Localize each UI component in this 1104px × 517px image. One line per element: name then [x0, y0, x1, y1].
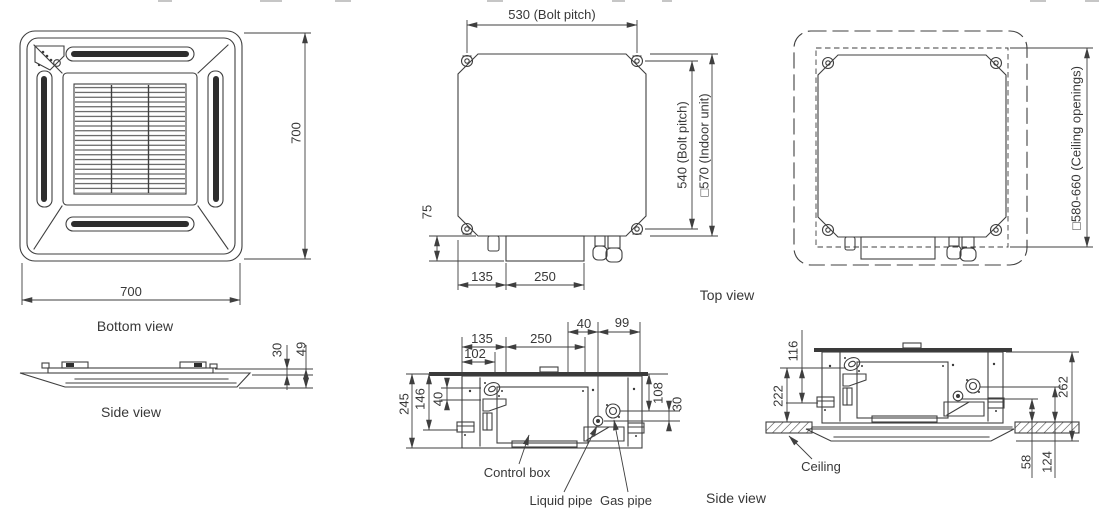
dim-540-bolt-pitch: 540 (Bolt pitch) [675, 101, 690, 188]
bottom-view-caption: Bottom view [97, 318, 174, 334]
panel-side-view: 30 49 Side view [20, 342, 313, 420]
panel-side-view-caption: Side view [101, 404, 162, 420]
dim-222: 222 [771, 385, 786, 407]
unit-side-dimensions: 135 250 40 99 102 245 146 40 108 [397, 315, 685, 448]
hanger-brackets [462, 56, 643, 235]
dim-30: 30 [670, 397, 685, 411]
refrigerant-pipes [593, 236, 622, 262]
drain-pump [482, 380, 506, 430]
ceiling-opening-outline [816, 48, 1008, 247]
dim-102: 102 [464, 346, 486, 361]
gas-pipe-joint [606, 404, 620, 418]
unit-side-view: 135 250 40 99 102 245 146 40 108 [397, 315, 767, 508]
decoration-panel [806, 427, 1014, 441]
cassette-unit-dimension-drawing: 700 700 Bottom view 30 49 [0, 0, 1104, 517]
unit-body-outline [458, 54, 646, 236]
bottom-view: 700 700 Bottom view [20, 31, 311, 334]
ceiling-label-group: Ceiling [789, 436, 841, 474]
dim-135: 135 [471, 331, 493, 346]
dim-250: 250 [534, 269, 556, 284]
dim-580-660-ceiling-openings: □580-660 (Ceiling openings) [1069, 66, 1084, 230]
top-view: 530 (Bolt pitch) 540 (Bolt pitch) □570 (… [420, 7, 756, 303]
dim-width-700: 700 [120, 284, 142, 299]
bottom-slot [512, 441, 577, 447]
dim-250: 250 [530, 331, 552, 346]
control-box-label: Control box [484, 465, 551, 480]
dim-124: 124 [1040, 451, 1055, 473]
hanger-brackets [823, 58, 1002, 236]
ceiling-opening-view: □580-660 (Ceiling openings) [794, 31, 1093, 265]
decoration-panel-profile [20, 373, 250, 387]
gas-pipe-label: Gas pipe [600, 493, 652, 508]
installed-side-view: 116 222 262 58 124 Ceiling [766, 330, 1079, 478]
dim-245: 245 [397, 393, 412, 415]
drain-connector [488, 236, 499, 251]
ceiling-opening-dimension: □580-660 (Ceiling openings) [1010, 48, 1093, 247]
refrigerant-pipes [947, 237, 976, 261]
internal-components [457, 378, 644, 447]
drain-pan [506, 236, 584, 261]
drawing-canvas: 700 700 Bottom view 30 49 [0, 0, 1104, 517]
dim-75: 75 [420, 205, 435, 219]
dim-530-bolt-pitch: 530 (Bolt pitch) [508, 7, 595, 22]
dim-135: 135 [471, 269, 493, 284]
control-box-outline [497, 387, 588, 443]
drain-pan [861, 237, 935, 259]
dim-146: 146 [413, 388, 428, 410]
unit-side-labels: Control box Liquid pipe Gas pipe [484, 420, 652, 508]
hanger-rail [903, 343, 921, 348]
top-plate [814, 348, 1012, 352]
dim-30: 30 [270, 343, 285, 357]
cropped-text-remnants [158, 0, 1099, 2]
unit-side-view-caption: Side view [706, 490, 767, 506]
dim-116: 116 [786, 341, 801, 362]
dim-570-indoor-unit: □570 (Indoor unit) [697, 93, 712, 196]
ceiling-label: Ceiling [801, 459, 841, 474]
dim-58: 58 [1019, 455, 1034, 469]
hanger-rail [540, 367, 558, 372]
dim-40-left: 40 [431, 392, 446, 406]
suction-grille [63, 73, 197, 205]
unit-body-outline [818, 55, 1006, 237]
dim-99: 99 [615, 315, 629, 330]
top-view-caption: Top view [700, 287, 755, 303]
dim-height-700: 700 [289, 122, 304, 144]
drain-connector [845, 237, 855, 250]
top-view-dimensions: 530 (Bolt pitch) 540 (Bolt pitch) □570 (… [420, 7, 719, 290]
dim-49: 49 [294, 342, 309, 356]
dim-40-top: 40 [577, 316, 591, 331]
liquid-pipe-label: Liquid pipe [530, 493, 593, 508]
liquid-pipe-joint [593, 416, 603, 426]
dim-108: 108 [651, 382, 666, 404]
